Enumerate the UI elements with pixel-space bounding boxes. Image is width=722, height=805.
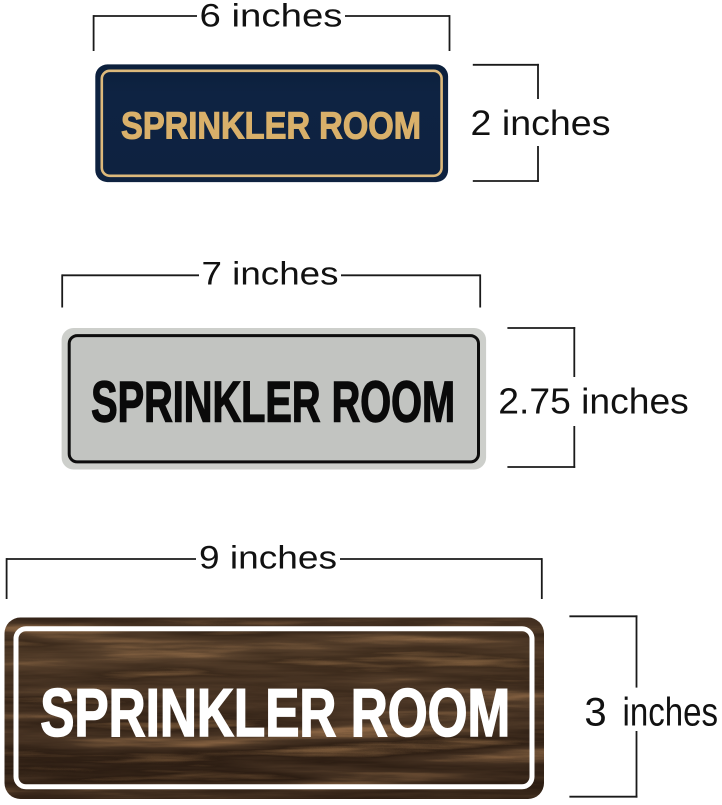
svg-text:inches: inches bbox=[623, 691, 719, 735]
svg-text:SPRINKLER ROOM: SPRINKLER ROOM bbox=[121, 106, 421, 148]
svg-text:SPRINKLER ROOM: SPRINKLER ROOM bbox=[40, 676, 510, 751]
svg-text:6 inches: 6 inches bbox=[200, 0, 343, 34]
svg-text:3: 3 bbox=[584, 691, 606, 735]
svg-text:SPRINKLER ROOM: SPRINKLER ROOM bbox=[91, 370, 455, 434]
svg-text:9 inches: 9 inches bbox=[199, 540, 337, 576]
svg-text:2.75 inches: 2.75 inches bbox=[498, 380, 689, 421]
svg-text:7 inches: 7 inches bbox=[202, 255, 339, 291]
svg-text:2 inches: 2 inches bbox=[471, 104, 611, 143]
